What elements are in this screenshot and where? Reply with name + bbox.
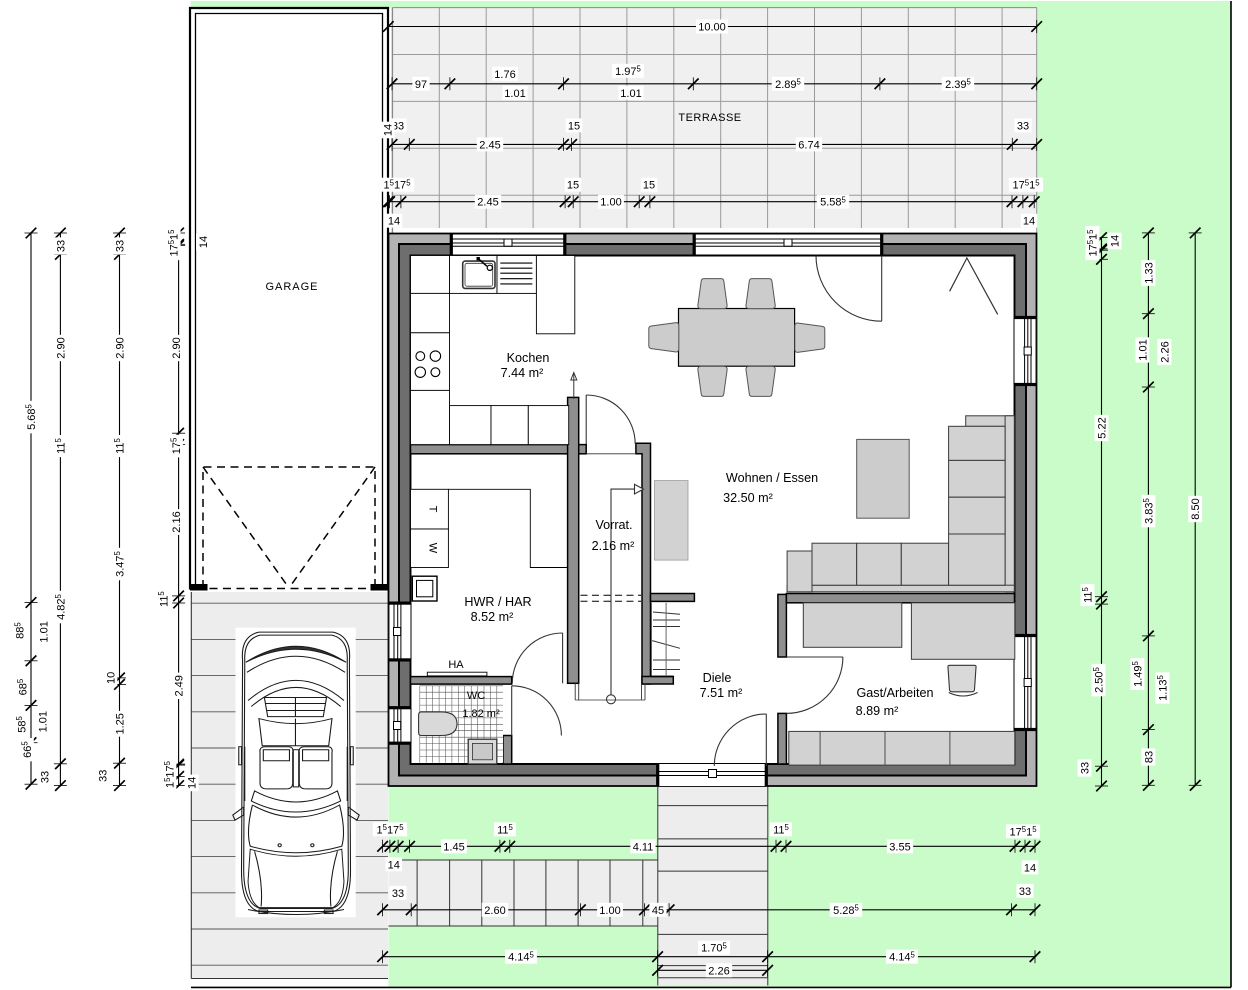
svg-text:6.74: 6.74	[798, 139, 819, 151]
svg-text:8.52 m²: 8.52 m²	[471, 610, 514, 624]
svg-text:33: 33	[1017, 120, 1029, 132]
svg-text:1.01: 1.01	[1137, 339, 1149, 360]
svg-text:45: 45	[652, 905, 664, 917]
svg-text:3.55: 3.55	[889, 841, 910, 853]
svg-text:33: 33	[97, 770, 109, 782]
svg-text:15: 15	[643, 180, 655, 192]
svg-text:Wohnen / Essen: Wohnen / Essen	[726, 471, 818, 485]
svg-text:WC: WC	[467, 690, 485, 702]
svg-text:14: 14	[383, 124, 395, 136]
svg-text:2.26: 2.26	[708, 965, 729, 977]
svg-text:1.00: 1.00	[599, 905, 620, 917]
svg-text:8.89 m²: 8.89 m²	[856, 704, 899, 718]
svg-text:2.90: 2.90	[55, 337, 67, 358]
svg-text:14: 14	[388, 216, 400, 228]
svg-text:1.01: 1.01	[620, 88, 641, 100]
svg-text:33: 33	[55, 240, 67, 252]
svg-text:5.22: 5.22	[1097, 417, 1109, 438]
svg-text:1.01: 1.01	[504, 88, 525, 100]
svg-text:2.49: 2.49	[174, 675, 186, 696]
svg-text:2.90: 2.90	[115, 337, 127, 358]
svg-text:15: 15	[567, 180, 579, 192]
svg-text:33: 33	[40, 771, 52, 783]
svg-text:4.11: 4.11	[633, 841, 654, 853]
svg-text:15: 15	[568, 120, 580, 132]
svg-text:8.50: 8.50	[1190, 498, 1202, 519]
svg-text:32.50 m²: 32.50 m²	[723, 491, 773, 505]
svg-text:2.45: 2.45	[479, 139, 500, 151]
svg-text:HWR / HAR: HWR / HAR	[464, 595, 531, 609]
svg-text:1.00: 1.00	[600, 197, 621, 209]
svg-text:TERRASSE: TERRASSE	[678, 112, 741, 124]
svg-text:14: 14	[187, 777, 199, 789]
svg-text:97: 97	[415, 79, 427, 91]
svg-text:T: T	[427, 506, 439, 513]
svg-text:1.25: 1.25	[115, 713, 127, 734]
svg-text:1.33: 1.33	[1143, 262, 1155, 283]
svg-text:2.26: 2.26	[1159, 341, 1171, 362]
svg-text:2.16 m²: 2.16 m²	[592, 539, 635, 553]
svg-text:1.76: 1.76	[494, 69, 515, 81]
svg-text:14: 14	[1024, 862, 1036, 874]
svg-text:33: 33	[392, 888, 404, 900]
svg-text:Diele: Diele	[703, 671, 732, 685]
svg-text:7.51 m²: 7.51 m²	[700, 686, 743, 700]
svg-text:10.00: 10.00	[698, 22, 726, 34]
svg-text:2.45: 2.45	[477, 197, 498, 209]
svg-text:2.16: 2.16	[171, 511, 183, 532]
svg-text:10: 10	[105, 672, 117, 684]
svg-text:2.90: 2.90	[171, 337, 183, 358]
svg-text:33: 33	[1080, 762, 1092, 774]
svg-text:14: 14	[388, 859, 400, 871]
svg-text:Vorrat.: Vorrat.	[595, 518, 632, 532]
svg-text:14: 14	[1023, 216, 1035, 228]
svg-text:7.44 m²: 7.44 m²	[501, 366, 544, 380]
svg-text:2.60: 2.60	[484, 905, 505, 917]
svg-text:14: 14	[1110, 235, 1122, 247]
svg-text:33: 33	[1019, 886, 1031, 898]
svg-text:GARAGE: GARAGE	[265, 281, 318, 293]
svg-text:HA: HA	[448, 659, 464, 671]
svg-text:1.01: 1.01	[38, 711, 50, 732]
svg-text:14: 14	[198, 236, 210, 248]
svg-text:1.01: 1.01	[38, 621, 50, 642]
svg-text:1.45: 1.45	[443, 841, 464, 853]
svg-text:33: 33	[115, 240, 127, 252]
svg-text:1.82 m²: 1.82 m²	[462, 708, 500, 720]
svg-text:Gast/Arbeiten: Gast/Arbeiten	[856, 686, 933, 700]
svg-text:W: W	[427, 543, 439, 554]
svg-text:Kochen: Kochen	[507, 351, 550, 365]
svg-text:83: 83	[1143, 751, 1155, 763]
